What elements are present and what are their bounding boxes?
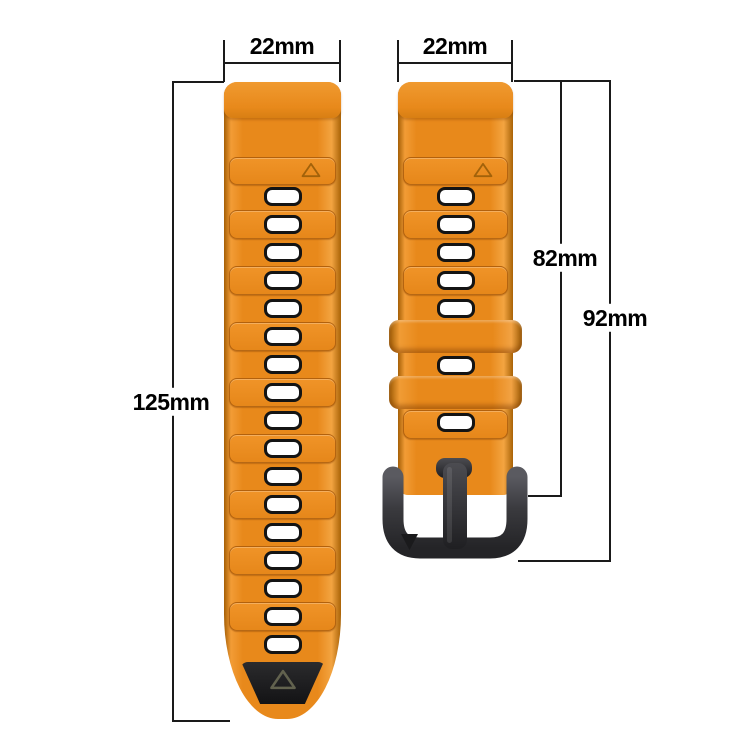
right-strap-hole	[437, 187, 475, 206]
right-strap-hole	[437, 271, 475, 290]
left-strap-lug	[224, 82, 341, 118]
right-strap-triangle-segment	[403, 157, 508, 185]
triangle-up-icon	[473, 162, 493, 178]
left-strap-hole	[264, 439, 302, 458]
buckle-prong	[443, 463, 467, 549]
keeper-loop	[389, 320, 522, 353]
buckle-prong-highlight	[447, 467, 452, 543]
left-strap-hole	[264, 579, 302, 598]
dimension-label-left-width: 22mm	[244, 32, 320, 60]
right-top-connector	[514, 80, 611, 82]
left-strap-hole	[264, 635, 302, 654]
keeper-loop	[389, 376, 522, 409]
left-strap-hole	[264, 215, 302, 234]
dimension-label-inner-length: 82mm	[527, 244, 603, 272]
left-strap-hole	[264, 327, 302, 346]
right-width-tick-r	[511, 40, 513, 82]
dimension-label-outer-length: 92mm	[577, 304, 653, 332]
left-length-bot-tick	[172, 720, 230, 722]
strap-black-tip	[240, 662, 326, 704]
triangle-marker-icon	[301, 162, 321, 183]
left-strap-hole	[264, 467, 302, 486]
left-width-tick-l	[223, 40, 225, 82]
right-strap	[398, 82, 513, 495]
right-width-line	[398, 62, 513, 64]
left-strap-hole	[264, 243, 302, 262]
left-strap-triangle-segment	[229, 157, 336, 185]
left-strap	[224, 82, 341, 719]
left-width-line	[224, 62, 341, 64]
left-strap-hole	[264, 383, 302, 402]
left-strap-hole	[264, 299, 302, 318]
left-strap-hole	[264, 551, 302, 570]
dimension-label-right-width: 22mm	[417, 32, 493, 60]
left-strap-hole	[264, 607, 302, 626]
left-strap-hole	[264, 271, 302, 290]
tip-triangle-marker-icon	[269, 669, 297, 695]
triangle-marker-icon	[473, 162, 493, 183]
buckle	[380, 455, 532, 567]
right-strap-hole	[437, 413, 475, 432]
buckle-frame	[380, 455, 532, 567]
triangle-up-icon	[301, 162, 321, 178]
product-diagram: 22mm 22mm 125mm 82mm 92mm	[0, 0, 750, 750]
left-strap-hole	[264, 411, 302, 430]
triangle-up-icon	[269, 669, 297, 690]
left-strap-hole	[264, 495, 302, 514]
right-strap-hole	[437, 299, 475, 318]
left-strap-hole	[264, 523, 302, 542]
left-strap-hole	[264, 187, 302, 206]
left-strap-hole	[264, 355, 302, 374]
right-strap-lug	[398, 82, 513, 118]
inner-length-bot-tick	[528, 495, 562, 497]
inner-length-line	[560, 80, 562, 497]
left-length-top-tick	[172, 81, 224, 83]
right-width-tick-l	[397, 40, 399, 82]
right-strap-hole	[437, 215, 475, 234]
dimension-label-left-length: 125mm	[127, 388, 216, 416]
right-strap-hole	[437, 356, 475, 375]
right-strap-hole	[437, 243, 475, 262]
left-width-tick-r	[339, 40, 341, 82]
